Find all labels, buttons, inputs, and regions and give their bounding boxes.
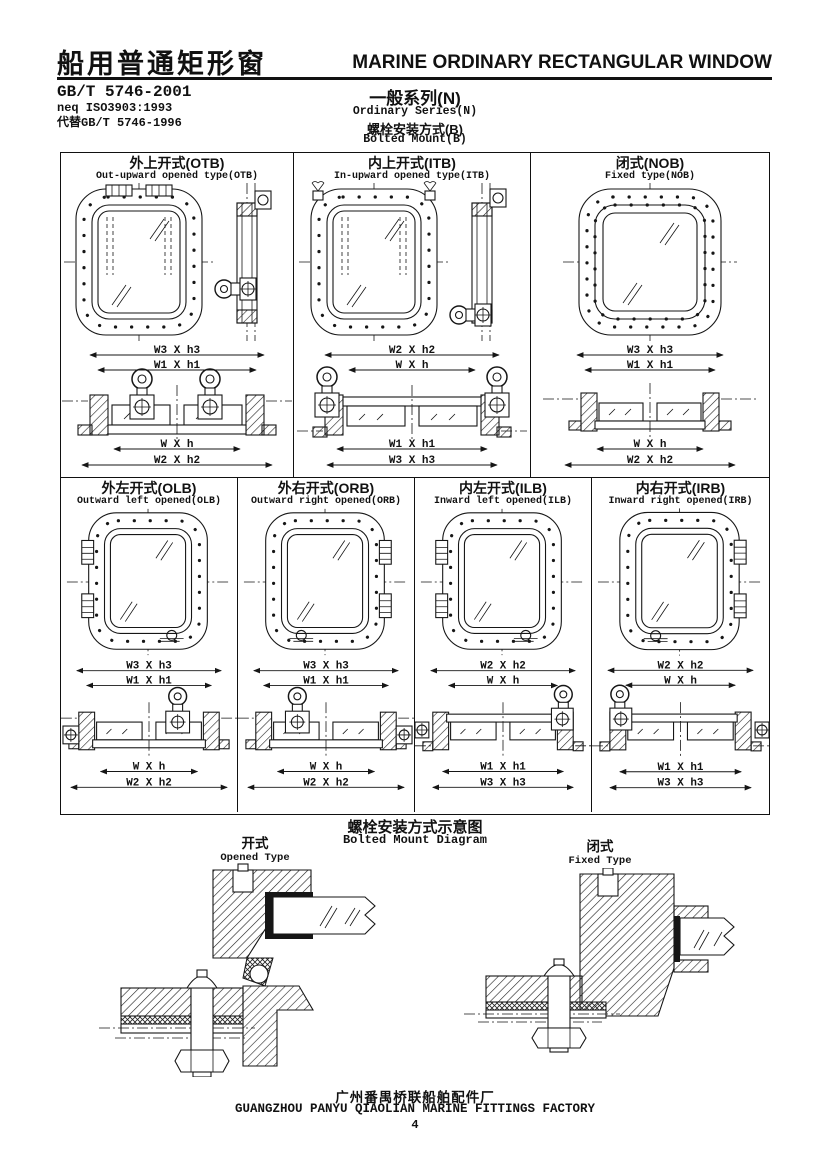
wing-nut-icon — [313, 191, 323, 200]
panel-header: 外上开式(OTB) Out-upward opened type(OTB) — [61, 153, 293, 181]
eyebolt-icon — [169, 687, 187, 705]
dim-label: W2 X h2 — [154, 455, 200, 467]
panel-subtitle-en: Outward right opened(ORB) — [238, 496, 414, 507]
window-types-table: 外上开式(OTB) Out-upward opened type(OTB) — [60, 152, 770, 815]
panel-title-zh: 内右开式(IRB) — [592, 481, 769, 496]
dim-label: W3 X h3 — [389, 455, 436, 467]
panel-itb: 内上开式(ITB) In-upward opened type(ITB) — [294, 153, 531, 477]
section-view-drawing: W2 X h2 W X h W1 X h1 — [592, 658, 769, 798]
table-row-2: 外左开式(OLB) Outward left opened(OLB) — [61, 478, 769, 812]
hinge-icon — [379, 540, 391, 564]
dim-label: W X h — [664, 675, 697, 687]
series-label-en: Ordinary Series(N) — [0, 105, 830, 118]
hinge-icon — [734, 540, 746, 564]
hinge-icon — [734, 594, 746, 618]
dim-label: W3 X h3 — [126, 661, 172, 673]
header-rule — [57, 77, 772, 80]
footer-factory-en: GUANGZHOU PANYU QIAOLIAN MARINE FITTINGS… — [0, 1102, 830, 1116]
dim-label: W3 X h3 — [627, 345, 674, 357]
dim-label: W2 X h2 — [126, 777, 172, 789]
panel-title-zh: 闭式(NOB) — [531, 156, 769, 171]
panel-title-zh: 外左开式(OLB) — [61, 481, 237, 496]
page-title-english: MARINE ORDINARY RECTANGULAR WINDOW — [352, 52, 772, 74]
front-view-drawing — [592, 506, 769, 658]
dim-label: W1 X h1 — [389, 439, 436, 451]
section-view-drawing: W3 X h3 W1 X h1 W X h — [61, 658, 237, 798]
dim-label: W3 X h3 — [658, 778, 704, 790]
dim-label: W2 X h2 — [658, 660, 704, 672]
front-view-drawing — [61, 506, 237, 658]
dim-label: W1 X h1 — [658, 762, 704, 774]
dim-label: W1 X h1 — [303, 676, 349, 688]
fixed-type-label-zh: 闭式 — [550, 839, 650, 855]
hinge-icon — [436, 594, 448, 618]
section-view-drawing: W3 X h3 W1 X h1 — [61, 343, 293, 473]
section-view-drawing: W2 X h2 W X h W — [294, 343, 530, 473]
panel-title-zh: 外上开式(OTB) — [61, 156, 293, 171]
mount-diagram-title-en: Bolted Mount Diagram — [0, 833, 830, 847]
section-view-drawing: W3 X h3 W1 X h1 W X h — [238, 658, 414, 798]
dim-label: W3 X h3 — [154, 345, 201, 357]
panel-title-zh: 外右开式(ORB) — [238, 481, 414, 496]
document-page: 船用普通矩形窗 MARINE ORDINARY RECTANGULAR WIND… — [0, 0, 830, 1175]
glass-pane — [680, 918, 734, 955]
panel-subtitle-en: Inward left opened(ILB) — [415, 496, 591, 507]
hinge-icon — [436, 540, 448, 564]
section-view-drawing: W3 X h3 W1 X h1 W X h W2 X h2 — [531, 343, 769, 473]
panel-irb: 内右开式(IRB) Inward right opened(IRB) — [592, 478, 769, 812]
fixed-type-section-drawing — [462, 868, 742, 1053]
hinge-icon — [379, 594, 391, 618]
eyebolt-icon — [487, 367, 507, 387]
opened-type-label-zh: 开式 — [205, 836, 305, 852]
fixed-type-label: 闭式 Fixed Type — [550, 839, 650, 867]
eyebolt-icon — [554, 685, 572, 703]
dim-label: W X h — [310, 762, 343, 774]
dim-label: W1 X h1 — [154, 360, 201, 372]
dim-label: W2 X h2 — [627, 455, 673, 467]
dim-label: W3 X h3 — [480, 777, 526, 789]
dim-label: W X h — [633, 439, 666, 451]
front-view-drawing — [238, 506, 414, 658]
dim-label: W X h — [133, 762, 166, 774]
glass-pane — [273, 897, 375, 934]
bolt-shank — [548, 976, 570, 1028]
panel-subtitle-en: Outward left opened(OLB) — [61, 496, 237, 507]
hinge-icon — [82, 540, 94, 564]
eyebolt-icon — [200, 369, 220, 389]
panel-ilb: 内左开式(ILB) Inward left opened(ILB) — [415, 478, 592, 812]
front-view-drawing — [415, 506, 591, 658]
bolt-head — [544, 965, 574, 977]
panel-header: 外左开式(OLB) Outward left opened(OLB) — [61, 478, 237, 506]
dim-label: W1 X h1 — [627, 360, 674, 372]
table-row-1: 外上开式(OTB) Out-upward opened type(OTB) — [61, 153, 769, 478]
panel-header: 内右开式(IRB) Inward right opened(IRB) — [592, 478, 769, 506]
panel-header: 闭式(NOB) Fixed type(NOB) — [531, 153, 769, 181]
wing-nut-icon — [425, 191, 435, 200]
front-view-drawing — [294, 181, 530, 343]
hex-nut-icon — [175, 1050, 229, 1072]
eyebolt-icon — [611, 685, 629, 703]
dim-label: W X h — [160, 439, 193, 451]
dim-label: W3 X h3 — [303, 661, 349, 673]
dim-label: W2 X h2 — [480, 661, 526, 673]
front-view-drawing — [531, 181, 769, 343]
panel-header: 内上开式(ITB) In-upward opened type(ITB) — [294, 153, 530, 181]
panel-header: 内左开式(ILB) Inward left opened(ILB) — [415, 478, 591, 506]
dim-label: W2 X h2 — [303, 777, 349, 789]
dim-label: W2 X h2 — [389, 345, 435, 357]
hinge-icon — [82, 594, 94, 618]
front-view-drawing — [61, 181, 293, 343]
page-title-chinese: 船用普通矩形窗 — [57, 42, 267, 81]
eyebolt-icon — [132, 369, 152, 389]
eyebolt-icon — [450, 306, 468, 324]
section-view-drawing: W2 X h2 W X h W1 X h1 — [415, 658, 591, 798]
eyebolt-icon — [215, 280, 233, 298]
panel-nob: 闭式(NOB) Fixed type(NOB) W3 X h3 W1 — [531, 153, 769, 477]
opened-type-label: 开式 Opened Type — [205, 836, 305, 864]
panel-subtitle-en: Inward right opened(IRB) — [592, 496, 769, 507]
dim-label: W1 X h1 — [480, 762, 526, 774]
mount-label-en: Bolted Mount(B) — [0, 133, 830, 146]
panel-title-zh: 内左开式(ILB) — [415, 481, 591, 496]
panel-header: 外右开式(ORB) Outward right opened(ORB) — [238, 478, 414, 506]
bolt-shank — [191, 988, 213, 1054]
eyebolt-icon — [317, 367, 337, 387]
hinge-pin-icon — [250, 965, 268, 983]
panel-title-zh: 内上开式(ITB) — [294, 156, 530, 171]
page-number: 4 — [0, 1118, 830, 1132]
fixed-type-label-en: Fixed Type — [550, 855, 650, 867]
eyebolt-icon — [288, 687, 306, 705]
dim-label: W X h — [487, 676, 520, 688]
panel-orb: 外右开式(ORB) Outward right opened(ORB) — [238, 478, 415, 812]
opened-type-section-drawing — [95, 862, 380, 1077]
bolt-head — [187, 976, 217, 988]
panel-otb: 外上开式(OTB) Out-upward opened type(OTB) — [61, 153, 294, 477]
dim-label: W1 X h1 — [126, 676, 172, 688]
panel-olb: 外左开式(OLB) Outward left opened(OLB) — [61, 478, 238, 812]
dim-label: W X h — [395, 360, 428, 372]
hex-nut-icon — [532, 1028, 586, 1048]
